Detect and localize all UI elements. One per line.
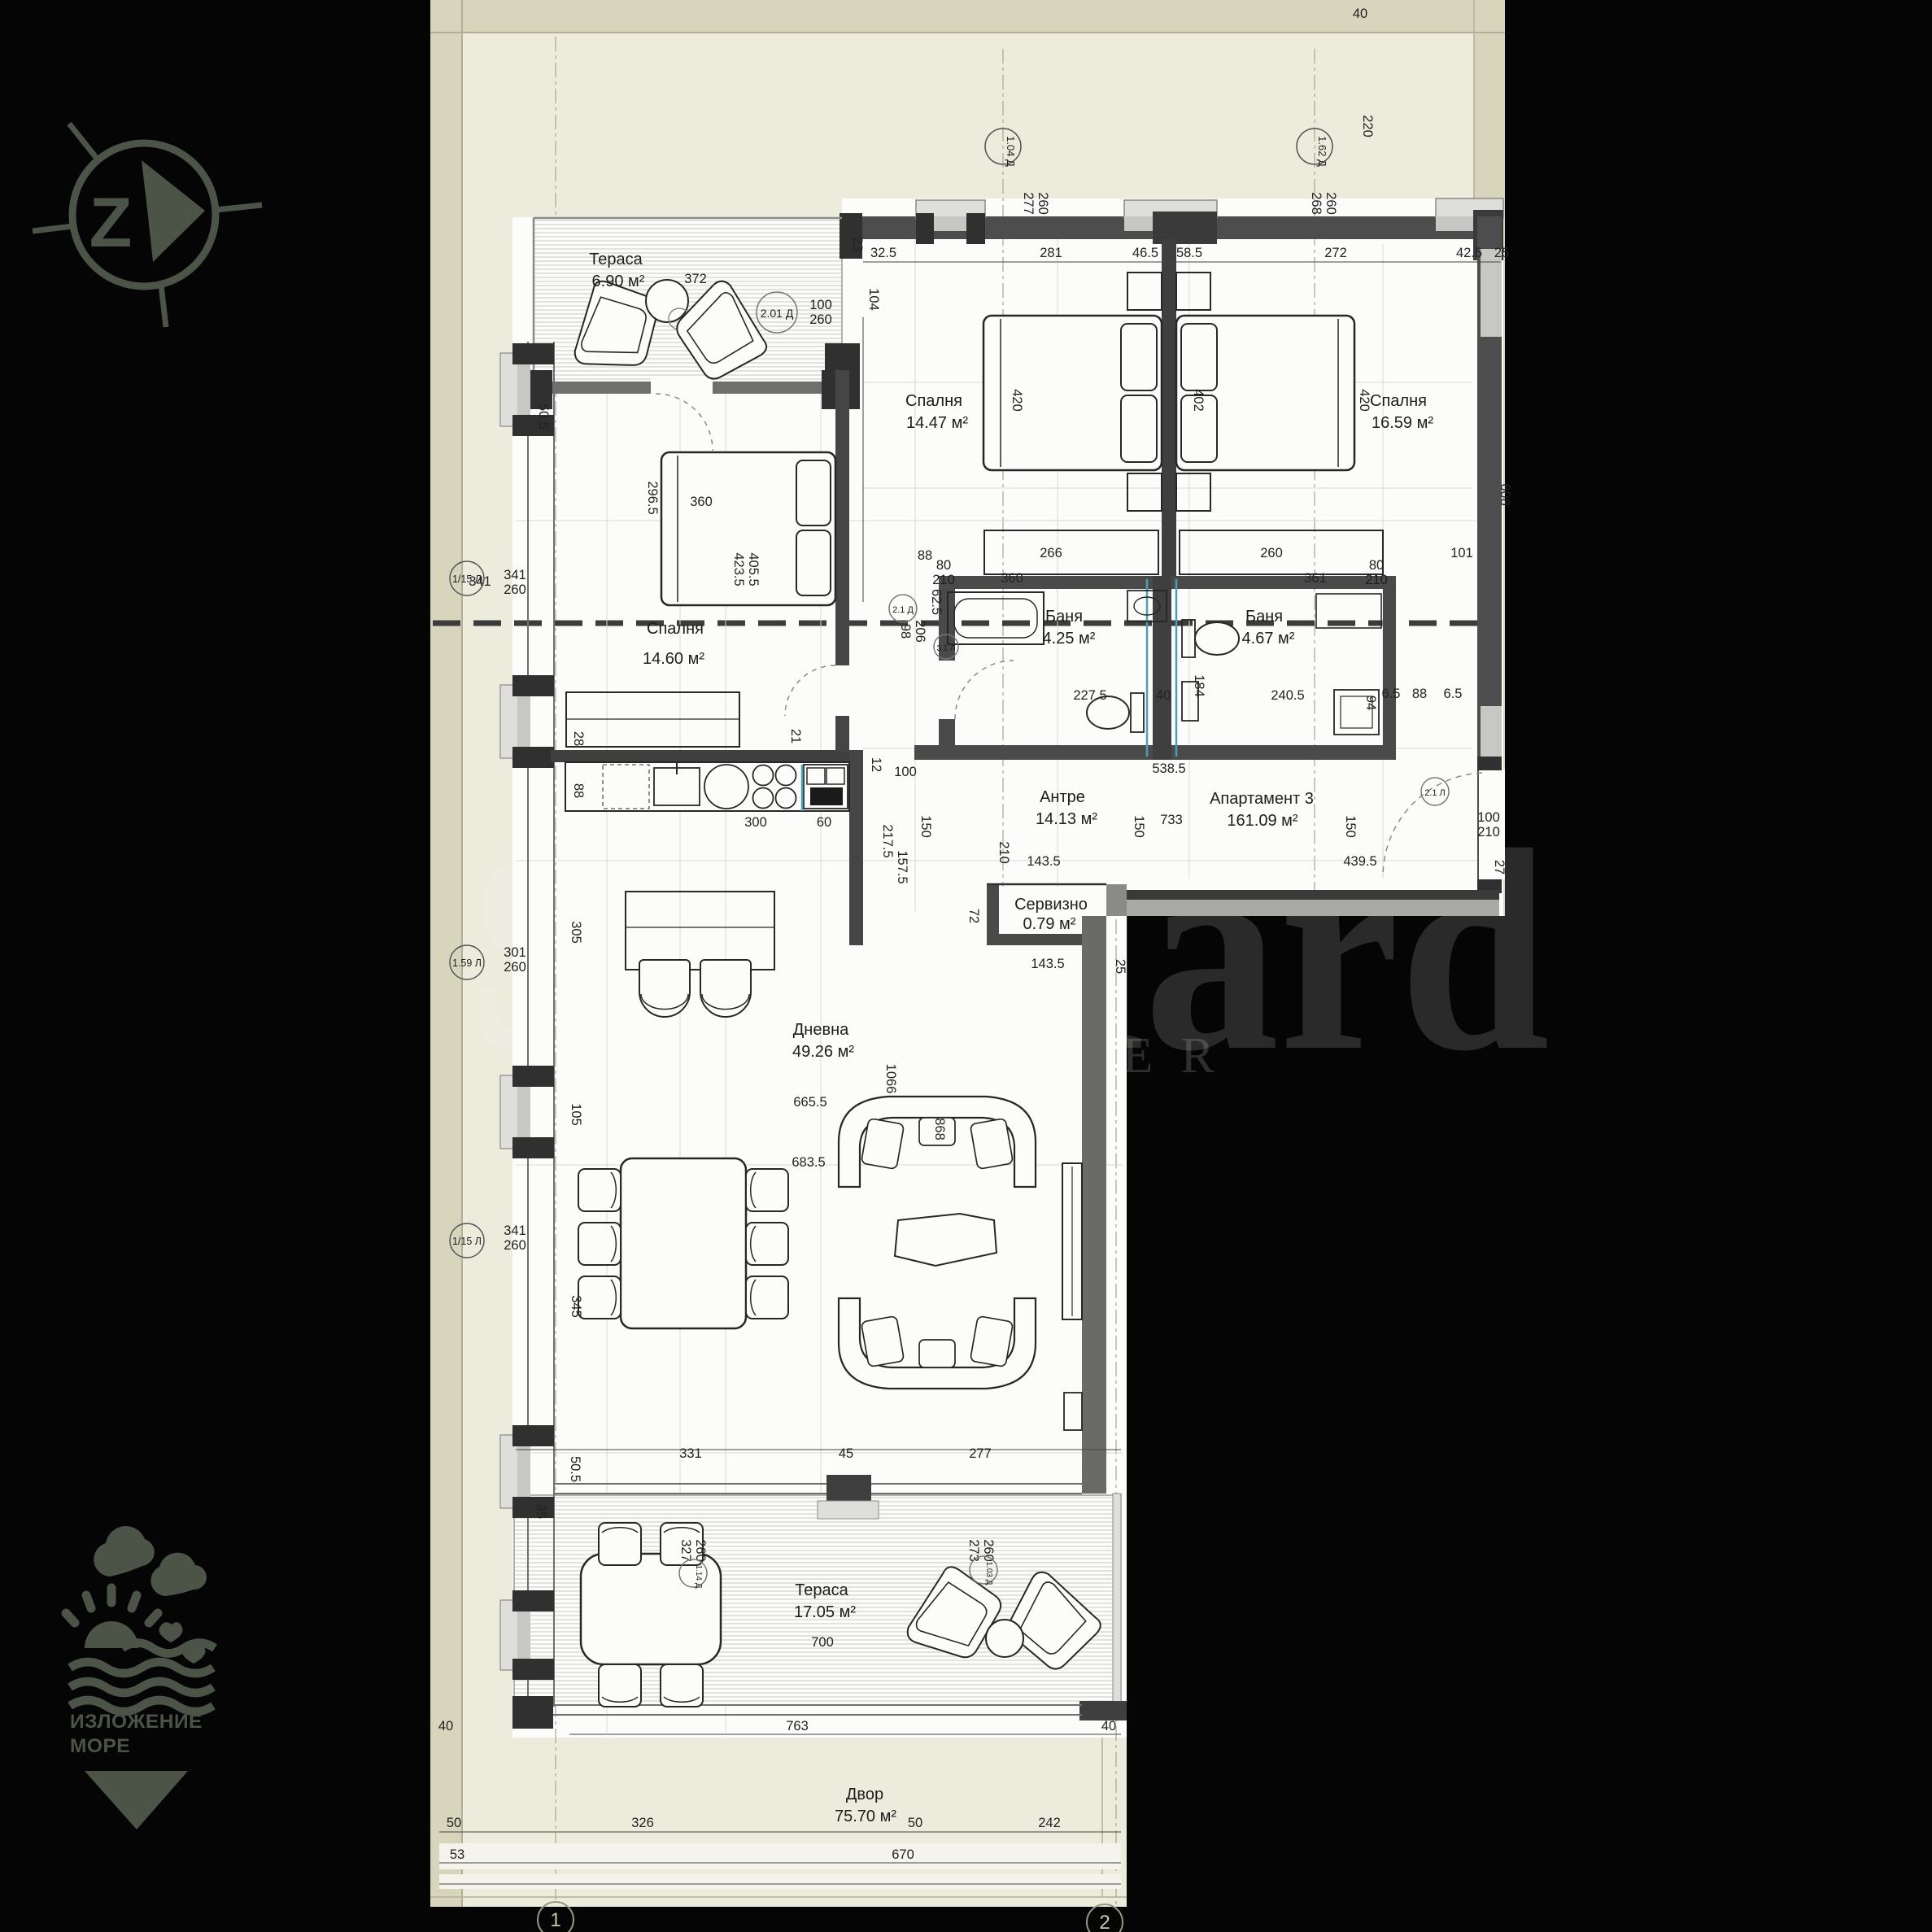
svg-text:372: 372 bbox=[684, 272, 707, 286]
svg-text:Баня: Баня bbox=[1245, 608, 1283, 626]
svg-text:16.59 м²: 16.59 м² bbox=[1372, 414, 1433, 432]
svg-text:301: 301 bbox=[504, 945, 526, 960]
svg-text:32.5: 32.5 bbox=[870, 246, 896, 260]
svg-text:260: 260 bbox=[504, 582, 526, 597]
svg-text:21: 21 bbox=[788, 729, 803, 744]
svg-text:1.62 Д: 1.62 Д bbox=[1316, 136, 1328, 167]
svg-text:608: 608 bbox=[1498, 483, 1512, 506]
svg-text:150: 150 bbox=[918, 815, 933, 838]
svg-text:210: 210 bbox=[997, 841, 1011, 864]
svg-text:42.5: 42.5 bbox=[1456, 246, 1482, 260]
svg-text:217.5: 217.5 bbox=[880, 824, 895, 857]
svg-text:150: 150 bbox=[1343, 815, 1358, 838]
svg-text:ИЗЛОЖЕНИЕ: ИЗЛОЖЕНИЕ bbox=[70, 1711, 203, 1733]
svg-text:184: 184 bbox=[1192, 674, 1206, 697]
svg-text:50.5: 50.5 bbox=[536, 403, 551, 430]
svg-text:260: 260 bbox=[504, 960, 526, 975]
svg-text:1/15 Л: 1/15 Л bbox=[452, 1236, 482, 1247]
svg-text:268: 268 bbox=[1309, 192, 1324, 215]
svg-text:12: 12 bbox=[869, 757, 883, 772]
svg-text:100: 100 bbox=[809, 298, 832, 312]
svg-text:25: 25 bbox=[1494, 246, 1509, 260]
svg-text:260: 260 bbox=[504, 1238, 526, 1253]
svg-text:25: 25 bbox=[1113, 959, 1127, 974]
svg-text:1/15 Л: 1/15 Л bbox=[452, 573, 482, 585]
svg-text:50: 50 bbox=[447, 1816, 461, 1830]
svg-text:40: 40 bbox=[1101, 1719, 1116, 1734]
svg-text:260: 260 bbox=[1036, 192, 1050, 215]
svg-text:1.03 Д: 1.03 Д bbox=[984, 1561, 993, 1585]
svg-text:46.5: 46.5 bbox=[1132, 246, 1158, 260]
svg-text:104: 104 bbox=[866, 288, 881, 311]
svg-text:62.5: 62.5 bbox=[929, 589, 944, 615]
svg-text:1066: 1066 bbox=[883, 1064, 898, 1094]
svg-text:360: 360 bbox=[1001, 571, 1023, 586]
svg-text:100: 100 bbox=[894, 765, 917, 779]
svg-text:МОРЕ: МОРЕ bbox=[70, 1735, 130, 1757]
svg-text:0.79 м²: 0.79 м² bbox=[1023, 915, 1076, 933]
svg-text:1.59 Л: 1.59 Л bbox=[452, 957, 482, 969]
svg-text:50: 50 bbox=[908, 1816, 922, 1830]
svg-text:1.04 Д: 1.04 Д bbox=[1005, 136, 1017, 167]
svg-text:88: 88 bbox=[1412, 687, 1427, 701]
svg-text:273: 273 bbox=[966, 1539, 981, 1562]
svg-text:40: 40 bbox=[1156, 688, 1171, 703]
svg-text:327: 327 bbox=[678, 1539, 693, 1562]
svg-text:40: 40 bbox=[1353, 7, 1367, 21]
svg-text:80: 80 bbox=[936, 558, 951, 573]
svg-text:80: 80 bbox=[1369, 558, 1384, 573]
svg-text:4.67 м²: 4.67 м² bbox=[1242, 630, 1295, 648]
svg-text:206: 206 bbox=[913, 620, 927, 643]
svg-text:Сервизно: Сервизно bbox=[1014, 896, 1088, 914]
svg-text:341: 341 bbox=[504, 1223, 526, 1238]
svg-text:Спалня: Спалня bbox=[1370, 392, 1427, 410]
svg-text:100: 100 bbox=[1477, 810, 1500, 825]
svg-text:220: 220 bbox=[1360, 115, 1375, 137]
svg-text:14.60 м²: 14.60 м² bbox=[643, 650, 704, 668]
svg-text:360: 360 bbox=[690, 495, 713, 509]
svg-text:281: 281 bbox=[1040, 246, 1062, 260]
svg-text:17.05 м²: 17.05 м² bbox=[794, 1603, 856, 1621]
svg-text:260: 260 bbox=[809, 312, 832, 327]
svg-text:23: 23 bbox=[850, 237, 865, 251]
svg-text:101: 101 bbox=[1450, 546, 1473, 560]
svg-text:331: 331 bbox=[679, 1446, 702, 1461]
svg-text:266: 266 bbox=[1040, 546, 1062, 560]
svg-text:2.1 Л: 2.1 Л bbox=[1424, 788, 1446, 798]
svg-text:35: 35 bbox=[534, 1504, 548, 1519]
svg-text:260: 260 bbox=[693, 1539, 708, 1562]
svg-text:763: 763 bbox=[786, 1719, 809, 1734]
svg-text:4.25 м²: 4.25 м² bbox=[1043, 630, 1096, 648]
svg-text:210: 210 bbox=[1365, 573, 1388, 587]
svg-text:6.5: 6.5 bbox=[1382, 687, 1401, 701]
svg-text:240.5: 240.5 bbox=[1271, 688, 1304, 703]
svg-text:Тераса: Тераса bbox=[795, 1581, 848, 1599]
svg-text:300: 300 bbox=[744, 815, 767, 830]
svg-text:143.5: 143.5 bbox=[1031, 957, 1064, 971]
svg-text:305: 305 bbox=[569, 921, 583, 944]
svg-text:1: 1 bbox=[550, 1909, 560, 1931]
svg-text:405.5: 405.5 bbox=[746, 552, 761, 586]
svg-text:423.5: 423.5 bbox=[731, 552, 746, 586]
svg-text:227.5: 227.5 bbox=[1073, 688, 1106, 703]
svg-text:1.14 Д: 1.14 Д bbox=[694, 1564, 703, 1588]
svg-text:161.09 м²: 161.09 м² bbox=[1227, 812, 1297, 830]
svg-text:420: 420 bbox=[1010, 389, 1024, 412]
svg-text:345: 345 bbox=[569, 1295, 583, 1318]
svg-text:28: 28 bbox=[571, 731, 586, 746]
svg-text:157.5: 157.5 bbox=[895, 850, 909, 883]
svg-text:210: 210 bbox=[1477, 825, 1500, 840]
svg-text:40: 40 bbox=[438, 1719, 453, 1734]
svg-text:210: 210 bbox=[932, 573, 955, 587]
svg-text:50.5: 50.5 bbox=[568, 1456, 582, 1482]
svg-text:272: 272 bbox=[1324, 246, 1347, 260]
svg-text:105: 105 bbox=[569, 1103, 583, 1126]
svg-text:45: 45 bbox=[839, 1446, 853, 1461]
svg-text:60: 60 bbox=[817, 815, 831, 830]
svg-text:420: 420 bbox=[1357, 389, 1372, 412]
svg-text:14.47 м²: 14.47 м² bbox=[906, 414, 968, 432]
svg-text:2: 2 bbox=[1099, 1912, 1110, 1932]
svg-text:Тераса: Тераса bbox=[589, 251, 643, 268]
svg-text:Спалня: Спалня bbox=[647, 620, 704, 638]
svg-text:341: 341 bbox=[504, 568, 526, 582]
svg-text:143.5: 143.5 bbox=[1027, 854, 1060, 869]
svg-text:6.90 м²: 6.90 м² bbox=[592, 273, 645, 290]
svg-text:260: 260 bbox=[1260, 546, 1283, 560]
svg-text:2.1 Д: 2.1 Д bbox=[892, 605, 914, 615]
svg-text:Двор: Двор bbox=[846, 1786, 883, 1803]
svg-text:49.26 м²: 49.26 м² bbox=[792, 1043, 854, 1061]
svg-text:683.5: 683.5 bbox=[792, 1155, 825, 1170]
svg-text:326: 326 bbox=[631, 1816, 654, 1830]
svg-text:14.13 м²: 14.13 м² bbox=[1036, 810, 1097, 828]
svg-text:88: 88 bbox=[918, 548, 932, 563]
svg-text:6.5: 6.5 bbox=[1444, 687, 1463, 701]
svg-text:Дневна: Дневна bbox=[793, 1021, 849, 1039]
svg-text:277: 277 bbox=[969, 1446, 992, 1461]
svg-text:88: 88 bbox=[571, 783, 586, 798]
svg-text:Антре: Антре bbox=[1040, 788, 1085, 806]
svg-text:98: 98 bbox=[898, 624, 913, 639]
svg-text:260: 260 bbox=[1324, 192, 1338, 215]
svg-text:665.5: 665.5 bbox=[793, 1095, 826, 1110]
svg-text:53: 53 bbox=[450, 1847, 464, 1862]
svg-text:Спалня: Спалня bbox=[905, 392, 962, 410]
svg-text:72: 72 bbox=[966, 909, 981, 923]
svg-text:Баня: Баня bbox=[1045, 608, 1083, 626]
svg-text:670: 670 bbox=[892, 1847, 914, 1862]
svg-text:27: 27 bbox=[1492, 860, 1507, 874]
svg-text:260: 260 bbox=[981, 1539, 996, 1562]
svg-text:3.1 Л: 3.1 Л bbox=[936, 644, 955, 653]
svg-text:Апартамент 3: Апартамент 3 bbox=[1210, 790, 1314, 808]
svg-text:94: 94 bbox=[1363, 696, 1378, 710]
svg-text:296.5: 296.5 bbox=[645, 481, 660, 514]
svg-text:150: 150 bbox=[1132, 815, 1146, 838]
svg-text:75.70 м²: 75.70 м² bbox=[835, 1808, 896, 1825]
svg-text:402: 402 bbox=[1191, 389, 1206, 412]
svg-text:868: 868 bbox=[932, 1118, 947, 1140]
svg-text:2.01 Д: 2.01 Д bbox=[761, 307, 794, 320]
svg-text:538.5: 538.5 bbox=[1152, 761, 1185, 776]
svg-text:58.5: 58.5 bbox=[1176, 246, 1202, 260]
svg-text:Z: Z bbox=[89, 184, 133, 262]
svg-text:242: 242 bbox=[1038, 1816, 1061, 1830]
svg-text:439.5: 439.5 bbox=[1343, 854, 1376, 869]
svg-text:733: 733 bbox=[1160, 813, 1183, 827]
svg-text:700: 700 bbox=[811, 1635, 834, 1650]
svg-text:361: 361 bbox=[1304, 571, 1327, 586]
svg-text:277: 277 bbox=[1021, 192, 1036, 215]
